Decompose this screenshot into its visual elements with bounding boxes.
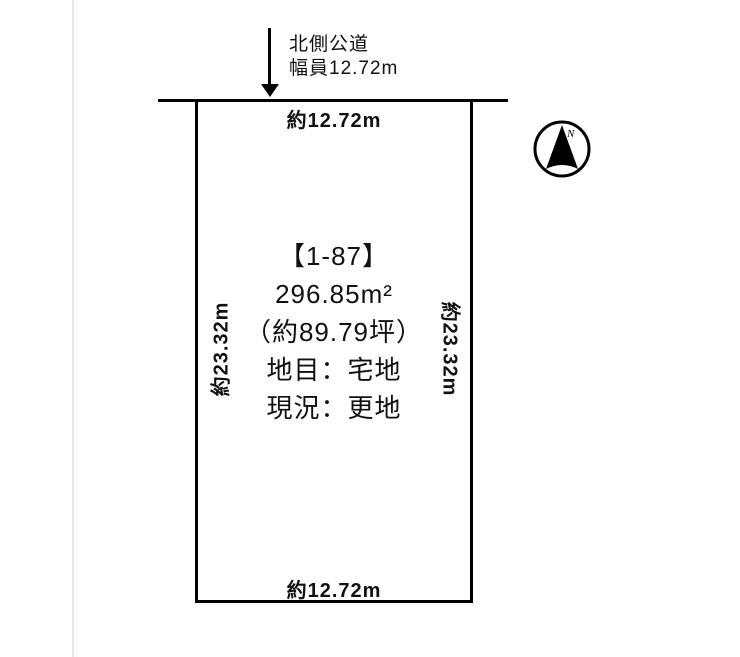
plot-info: 【1-87】 296.85m² （約89.79坪） 地目：宅地 現況：更地 [195, 237, 473, 427]
land-category-label: 地目：宅地 [195, 351, 473, 389]
land-plot-diagram: 北側公道 幅員12.72m 約12.72m 約12.72m 約23.32m 約2… [0, 0, 740, 657]
north-road-arrow-head [261, 84, 279, 97]
lot-number-label: 【1-87】 [195, 237, 473, 275]
road-name-label: 北側公道 [289, 33, 398, 57]
road-width-label: 幅員12.72m [289, 57, 398, 81]
dimension-bottom: 約12.72m [195, 574, 473, 603]
dimension-top: 約12.72m [195, 104, 473, 133]
north-road-arrow-shaft [268, 28, 271, 86]
compass: N [533, 120, 591, 178]
current-status-label: 現況：更地 [195, 389, 473, 427]
north-compass-icon: N [533, 120, 591, 178]
area-sqm-label: 296.85m² [195, 275, 473, 313]
road-annotation: 北側公道 幅員12.72m [289, 33, 398, 81]
area-tsubo-label: （約89.79坪） [195, 313, 473, 351]
page-edge-line [72, 0, 74, 657]
north-letter-label: N [566, 128, 575, 140]
